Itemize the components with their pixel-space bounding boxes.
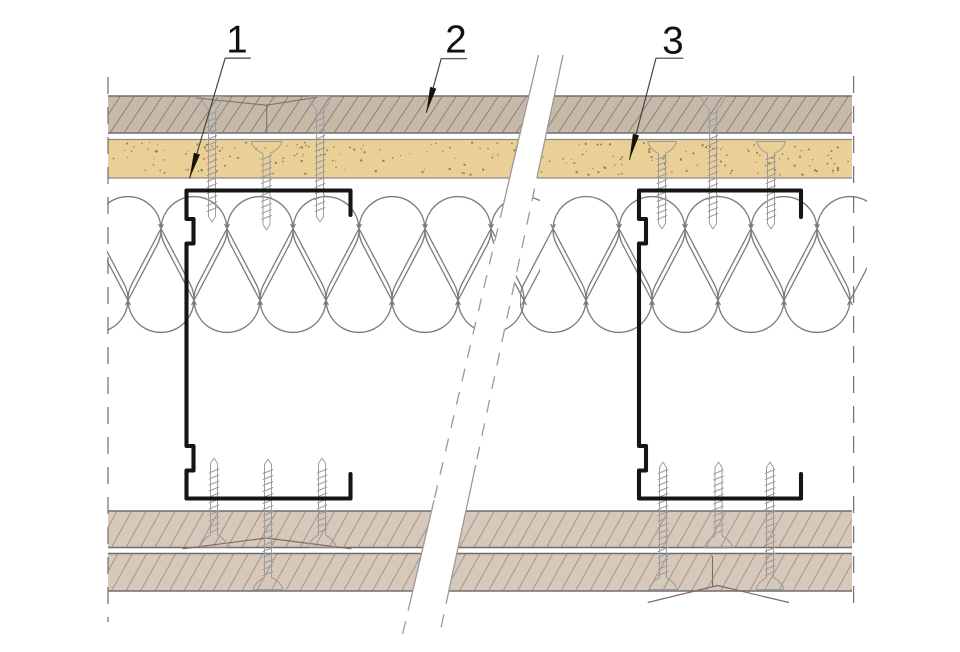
svg-text:1: 1: [226, 19, 247, 62]
svg-text:3: 3: [662, 20, 683, 63]
svg-text:2: 2: [445, 19, 466, 62]
